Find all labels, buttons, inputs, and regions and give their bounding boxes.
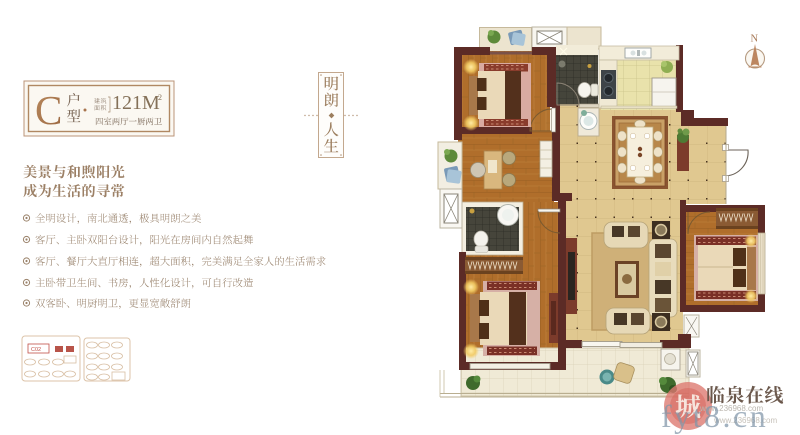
svg-text:C02: C02 [31, 347, 41, 353]
svg-text:C: C [35, 87, 62, 133]
svg-text:fyt8.cn: fyt8.cn [661, 398, 768, 434]
svg-text:121M: 121M [112, 92, 160, 114]
svg-text:2: 2 [158, 93, 162, 102]
svg-text:N: N [751, 34, 759, 45]
